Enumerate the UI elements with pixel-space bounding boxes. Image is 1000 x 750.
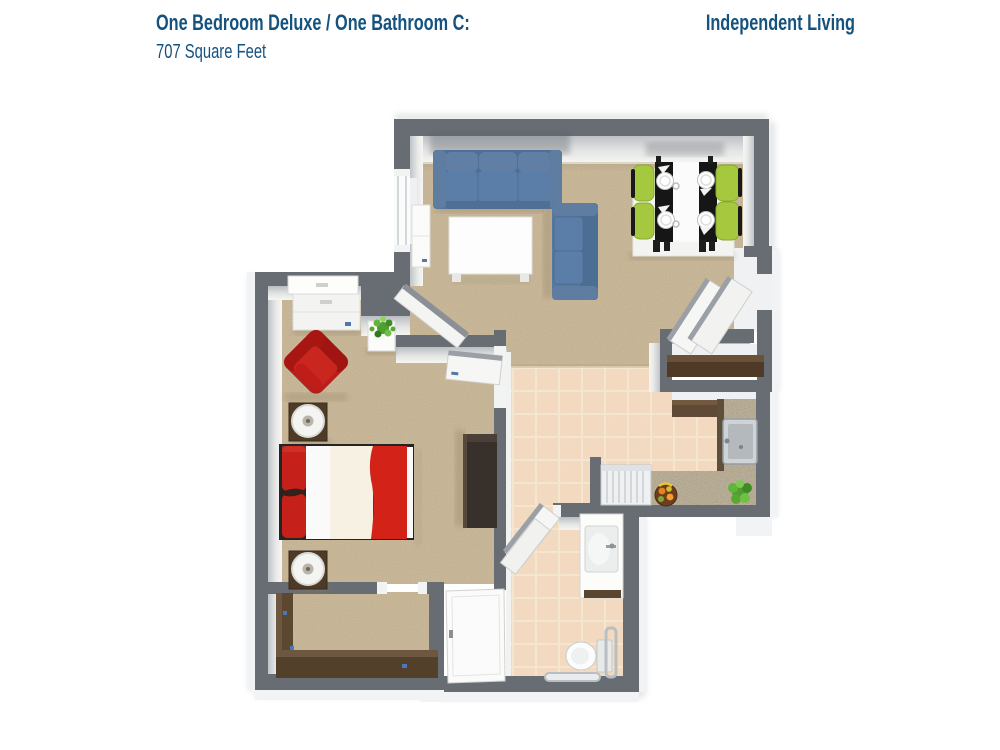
svg-text:Independent Living: Independent Living bbox=[706, 11, 855, 36]
svg-text:One Bedroom Deluxe / One Bathr: One Bedroom Deluxe / One Bathroom C: bbox=[156, 11, 470, 36]
svg-text:707 Square Feet: 707 Square Feet bbox=[156, 40, 266, 63]
